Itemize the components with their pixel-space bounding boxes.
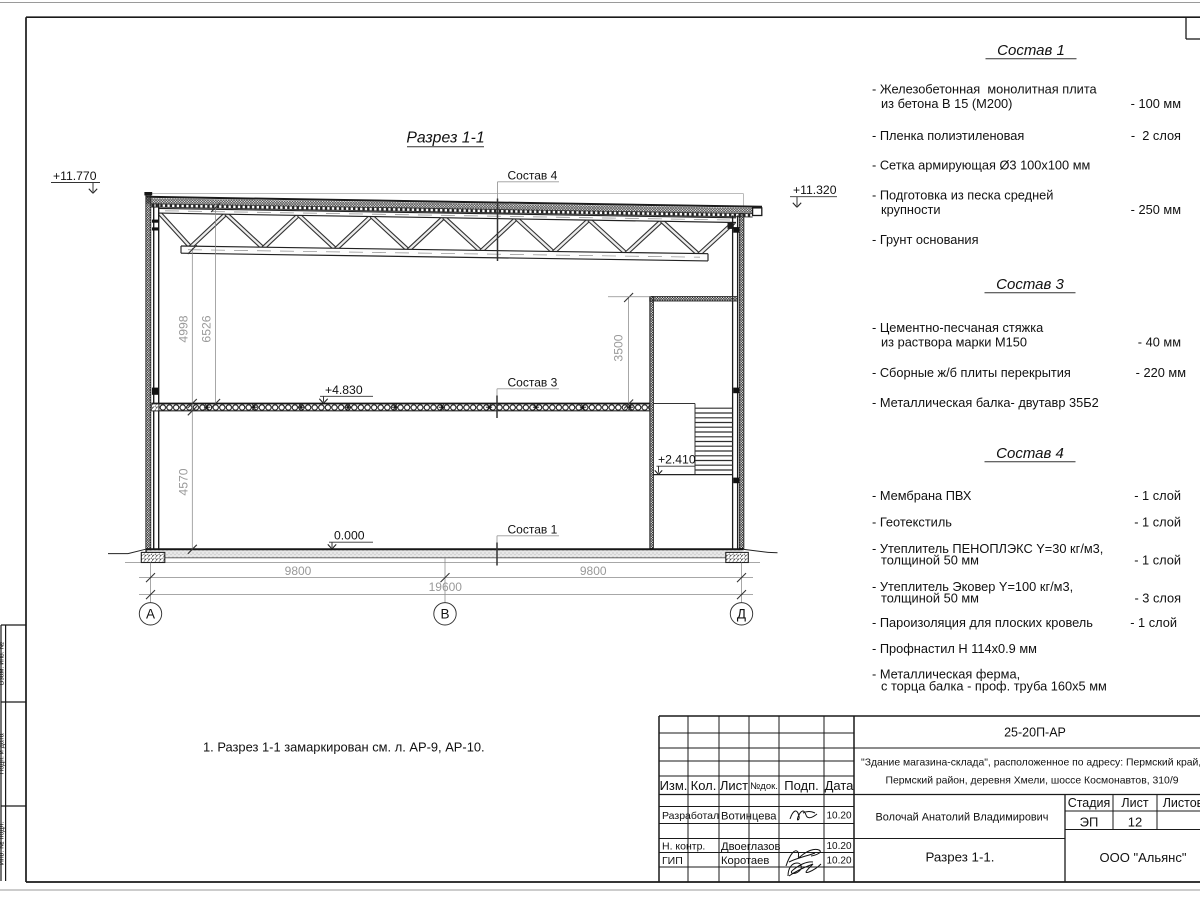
svg-text:25-20П-АР: 25-20П-АР: [1004, 726, 1066, 740]
svg-text:12: 12: [1128, 815, 1142, 830]
svg-text:Взам. инв. №: Взам. инв. №: [0, 642, 5, 685]
svg-text:- Пароизоляция для плоских кро: - Пароизоляция для плоских кровель: [872, 615, 1093, 630]
svg-text:1. Разрез 1-1 замаркирован см.: 1. Разрез 1-1 замаркирован см. л. АР-9, …: [203, 740, 485, 755]
svg-text:Листов: Листов: [1163, 796, 1200, 810]
svg-text:- 1 слой: - 1 слой: [1134, 552, 1181, 567]
svg-text:ГИП: ГИП: [662, 855, 683, 867]
svg-text:Лист: Лист: [720, 778, 748, 793]
svg-text:Подп. и дата: Подп. и дата: [0, 733, 5, 774]
svg-text:- Геотекстиль: - Геотекстиль: [872, 514, 952, 529]
svg-text:Кол.: Кол.: [691, 778, 717, 793]
svg-text:10.20: 10.20: [826, 841, 851, 852]
svg-text:6526: 6526: [200, 315, 214, 342]
svg-text:Инв. № подл.: Инв. № подл.: [0, 822, 5, 866]
svg-text:В: В: [440, 607, 449, 622]
svg-text:+4.830: +4.830: [325, 383, 363, 397]
svg-text:- Подготовка из песка средней: - Подготовка из песка средней: [872, 188, 1053, 203]
svg-text:- Грунт основания: - Грунт основания: [872, 232, 979, 247]
svg-text:Коротаев: Коротаев: [721, 855, 769, 867]
svg-text:+11.770: +11.770: [53, 169, 97, 183]
svg-text:- Мембрана ПВХ: - Мембрана ПВХ: [872, 488, 972, 503]
svg-text:- 2 слоя: - 2 слоя: [1131, 128, 1181, 143]
svg-text:толщиной 50 мм: толщиной 50 мм: [881, 552, 979, 567]
svg-text:Волочай Анатолий Владимирович: Волочай Анатолий Владимирович: [876, 812, 1049, 824]
svg-text:+11.320: +11.320: [793, 183, 837, 197]
svg-text:- Пленка полиэтиленовая: - Пленка полиэтиленовая: [872, 128, 1024, 143]
svg-text:"Здание магазина-склада", расп: "Здание магазина-склада", расположенное …: [861, 758, 1200, 769]
svg-text:0.000: 0.000: [334, 529, 365, 543]
svg-text:+2.410: +2.410: [658, 453, 696, 467]
svg-text:Состав 3: Состав 3: [508, 375, 558, 389]
svg-text:Двоеглазов: Двоеглазов: [721, 841, 781, 853]
svg-text:из раствора марки М150: из раствора марки М150: [881, 334, 1027, 349]
svg-text:Стадия: Стадия: [1068, 796, 1111, 810]
svg-text:Дата: Дата: [825, 778, 855, 793]
svg-text:- 3 слоя: - 3 слоя: [1134, 590, 1181, 605]
svg-text:- 40 мм: - 40 мм: [1138, 334, 1181, 349]
svg-text:9800: 9800: [580, 564, 607, 578]
svg-text:из бетона В 15 (М200): из бетона В 15 (М200): [881, 96, 1012, 111]
svg-text:Состав 3: Состав 3: [996, 276, 1064, 293]
svg-text:10.20: 10.20: [826, 856, 851, 867]
svg-text:- Сборные ж/б плиты перекрытия: - Сборные ж/б плиты перекрытия: [872, 365, 1071, 380]
svg-text:Д: Д: [737, 607, 746, 622]
svg-text:- Профнастил Н 114х0.9 мм: - Профнастил Н 114х0.9 мм: [872, 641, 1037, 656]
svg-text:10.20: 10.20: [826, 811, 851, 822]
svg-text:3500: 3500: [612, 334, 626, 361]
svg-text:- 250 мм: - 250 мм: [1131, 202, 1181, 217]
svg-text:Разрез 1-1.: Разрез 1-1.: [926, 850, 995, 865]
svg-text:Лист: Лист: [1121, 796, 1148, 810]
svg-text:крупности: крупности: [881, 202, 941, 217]
svg-text:Разработал: Разработал: [662, 810, 719, 822]
svg-text:- 100 мм: - 100 мм: [1131, 96, 1181, 111]
svg-text:9800: 9800: [285, 564, 312, 578]
svg-text:Состав 1: Состав 1: [508, 522, 558, 536]
svg-text:- 220 мм: - 220 мм: [1136, 365, 1186, 380]
svg-text:- 1 слой: - 1 слой: [1130, 615, 1177, 630]
svg-text:- Сетка армирующая Ø3 100х100: - Сетка армирующая Ø3 100х100 мм: [872, 158, 1090, 173]
svg-text:- Железобетонная монолитная п: - Железобетонная монолитная плита: [872, 82, 1098, 97]
svg-text:4998: 4998: [176, 315, 190, 342]
svg-text:4570: 4570: [176, 468, 190, 495]
svg-text:- Цементно-песчаная стяжка: - Цементно-песчаная стяжка: [872, 320, 1044, 335]
svg-text:- Металлическая балка- двутавр: - Металлическая балка- двутавр 35Б2: [872, 395, 1099, 410]
svg-text:19600: 19600: [429, 580, 463, 594]
svg-text:№док.: №док.: [750, 781, 778, 792]
svg-text:Разрез 1-1: Разрез 1-1: [406, 130, 484, 147]
svg-text:Состав 4: Состав 4: [508, 168, 558, 182]
svg-text:ЭП: ЭП: [1080, 815, 1099, 830]
svg-text:- 1 слой: - 1 слой: [1134, 514, 1181, 529]
svg-text:ООО "Альянс": ООО "Альянс": [1100, 850, 1187, 865]
svg-text:с торца балка - проф. труба 16: с торца балка - проф. труба 160х5 мм: [881, 678, 1107, 693]
svg-text:Состав 4: Состав 4: [996, 445, 1064, 462]
svg-text:Н. контр.: Н. контр.: [662, 841, 705, 853]
svg-text:толщиной 50 мм: толщиной 50 мм: [881, 590, 979, 605]
svg-text:Подп.: Подп.: [784, 778, 819, 793]
svg-text:Изм.: Изм.: [660, 778, 688, 793]
svg-text:Состав 1: Состав 1: [997, 42, 1065, 59]
svg-text:Вотинцева: Вотинцева: [721, 811, 777, 823]
svg-text:Пермский район, деревня Хмели,: Пермский район, деревня Хмели, шоссе Кос…: [885, 776, 1178, 787]
svg-text:А: А: [146, 607, 155, 622]
svg-text:- 1 слой: - 1 слой: [1134, 488, 1181, 503]
